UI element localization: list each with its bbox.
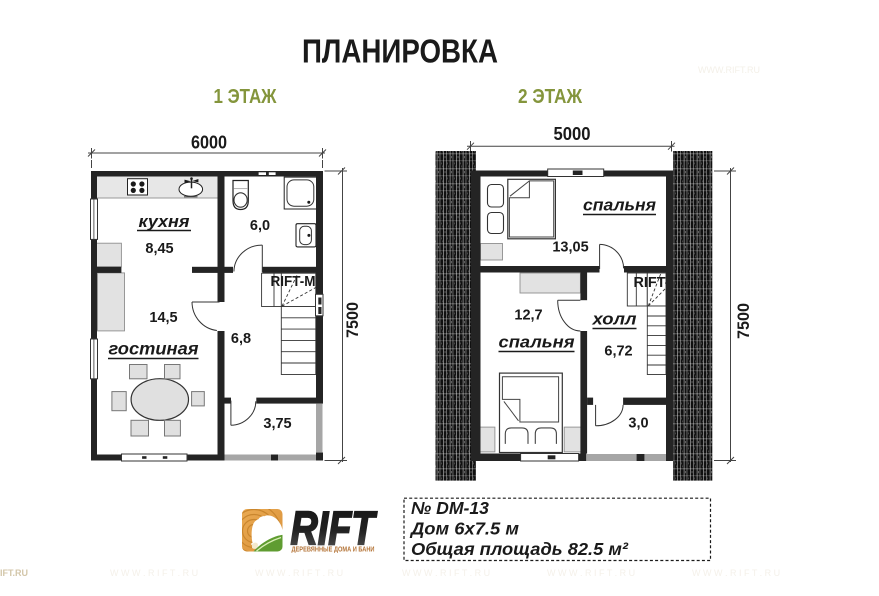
svg-text:кухня: кухня — [139, 212, 190, 231]
svg-text:Общая площадь 82.5 м²: Общая площадь 82.5 м² — [411, 539, 629, 559]
svg-text:гостиная: гостиная — [109, 339, 199, 359]
svg-text:IFT.RU: IFT.RU — [0, 568, 28, 578]
svg-text:6000: 6000 — [191, 133, 227, 153]
svg-text:3,0: 3,0 — [628, 416, 648, 432]
svg-text:3,75: 3,75 — [263, 416, 291, 432]
svg-text:спальня: спальня — [499, 333, 575, 352]
svg-text:6,72: 6,72 — [604, 344, 632, 360]
svg-text:№ DM-13: № DM-13 — [411, 498, 489, 518]
svg-text:WWW.RIFT.RU: WWW.RIFT.RU — [698, 65, 760, 75]
svg-text:8,45: 8,45 — [145, 241, 173, 257]
svg-text:холл: холл — [591, 310, 637, 329]
svg-text:спальня: спальня — [583, 196, 656, 215]
svg-text:7500: 7500 — [735, 303, 753, 339]
svg-text:RIFT-M: RIFT-M — [271, 273, 316, 290]
svg-text:W W W . R I F T . R U: W W W . R I F T . R U — [402, 568, 490, 578]
svg-text:ДЕРЕВЯННЫЕ ДОМА И БАНИ: ДЕРЕВЯННЫЕ ДОМА И БАНИ — [292, 545, 375, 554]
svg-text:7500: 7500 — [344, 302, 362, 338]
svg-text:2 ЭТАЖ: 2 ЭТАЖ — [518, 86, 583, 108]
svg-text:13,05: 13,05 — [552, 240, 588, 256]
svg-text:W W W . R I F T . R U: W W W . R I F T . R U — [547, 568, 635, 578]
svg-text:W W W . R I F T . R U: W W W . R I F T . R U — [692, 568, 780, 578]
svg-text:14,5: 14,5 — [149, 310, 177, 326]
svg-text:W W W . R I F T . R U: W W W . R I F T . R U — [255, 568, 343, 578]
svg-text:1 ЭТАЖ: 1 ЭТАЖ — [214, 86, 278, 108]
svg-text:6,8: 6,8 — [231, 331, 251, 347]
svg-text:RIFT-: RIFT- — [634, 274, 670, 291]
svg-text:6,0: 6,0 — [250, 218, 270, 234]
svg-text:Дом 6х7.5 м: Дом 6х7.5 м — [409, 519, 519, 539]
svg-text:W W W . R I F T . R U: W W W . R I F T . R U — [110, 568, 198, 578]
svg-text:12,7: 12,7 — [514, 308, 542, 324]
svg-text:5000: 5000 — [554, 124, 591, 144]
svg-text:ПЛАНИРОВКА: ПЛАНИРОВКА — [302, 33, 498, 70]
